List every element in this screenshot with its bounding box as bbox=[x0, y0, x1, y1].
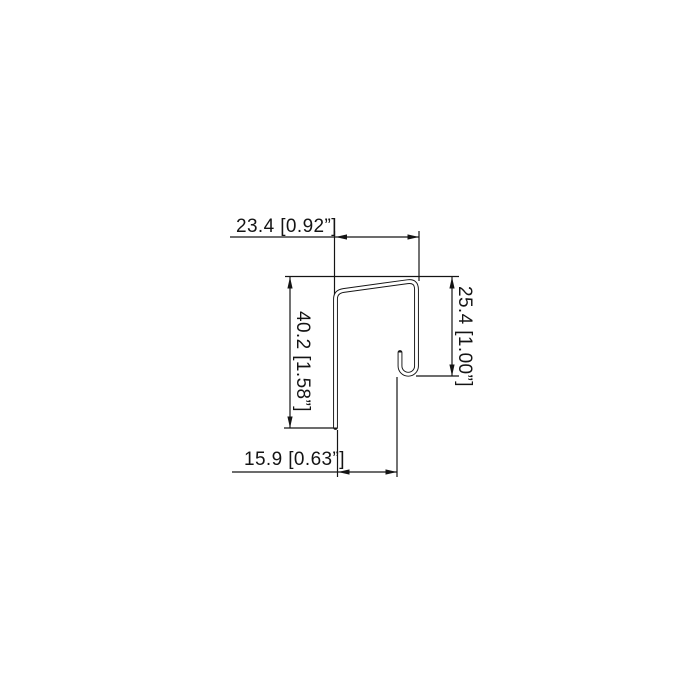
arrow-left-height-top bbox=[287, 277, 292, 289]
dimension-labels: 23.4 [0.92”] 40.2 [1.58”] 25.4 [1.00”] 1… bbox=[236, 216, 475, 470]
arrow-top-width-left bbox=[336, 234, 348, 239]
arrow-left-height-bottom bbox=[287, 417, 292, 429]
arrow-top-width-right bbox=[408, 234, 420, 239]
arrow-bottom-opening-right bbox=[386, 469, 398, 474]
dimension-lines bbox=[230, 231, 459, 477]
arrow-right-height-top bbox=[449, 277, 454, 289]
profile-inner-face bbox=[336, 282, 417, 428]
dim-label-top-width: 23.4 [0.92”] bbox=[236, 216, 337, 237]
drawing-canvas: 23.4 [0.92”] 40.2 [1.58”] 25.4 [1.00”] 1… bbox=[0, 0, 700, 700]
arrow-right-height-bottom bbox=[449, 365, 454, 377]
dim-label-right-height: 25.4 [1.00”] bbox=[454, 286, 475, 387]
dim-label-bottom-opening: 15.9 [0.63”] bbox=[244, 449, 345, 470]
arrow-bottom-opening-left bbox=[338, 469, 350, 474]
technical-drawing: 23.4 [0.92”] 40.2 [1.58”] 25.4 [1.00”] 1… bbox=[0, 0, 700, 700]
dim-label-left-height: 40.2 [1.58”] bbox=[292, 311, 313, 412]
profile-outline bbox=[336, 282, 417, 428]
